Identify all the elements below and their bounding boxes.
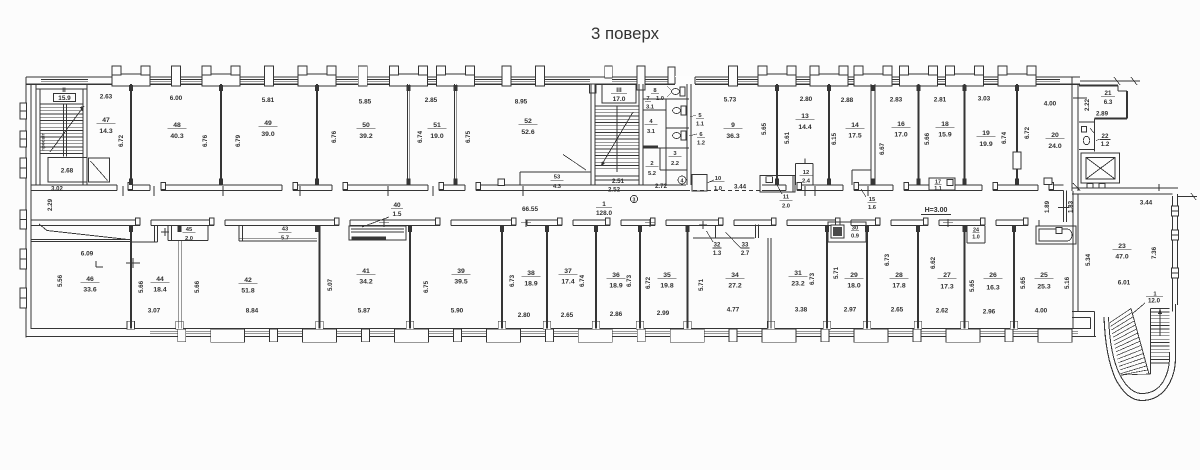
svg-text:39.0: 39.0 (261, 131, 274, 138)
svg-text:II: II (62, 87, 66, 94)
svg-text:4.77: 4.77 (727, 307, 740, 314)
svg-text:51.8: 51.8 (241, 288, 254, 295)
svg-text:5.90: 5.90 (451, 308, 464, 315)
svg-text:6.72: 6.72 (645, 276, 652, 289)
svg-text:4.00: 4.00 (1035, 308, 1048, 315)
svg-text:35: 35 (663, 272, 671, 279)
svg-text:19: 19 (982, 130, 990, 137)
svg-text:5.66: 5.66 (194, 280, 201, 293)
svg-text:31: 31 (794, 270, 802, 277)
svg-text:6.73: 6.73 (809, 272, 816, 285)
svg-text:2.29: 2.29 (47, 198, 54, 211)
svg-text:17.3: 17.3 (940, 284, 953, 291)
svg-text:52.6: 52.6 (521, 129, 534, 136)
svg-text:6.73: 6.73 (509, 274, 516, 287)
svg-text:6.73: 6.73 (884, 253, 891, 266)
svg-text:6.79: 6.79 (235, 134, 242, 147)
svg-text:49: 49 (264, 120, 272, 127)
svg-text:28: 28 (895, 272, 903, 279)
svg-text:26: 26 (989, 272, 997, 279)
svg-text:17.8: 17.8 (892, 283, 905, 290)
svg-text:15.9: 15.9 (58, 95, 71, 102)
svg-text:13: 13 (801, 113, 809, 120)
svg-text:53: 53 (554, 175, 561, 181)
svg-text:2.65: 2.65 (561, 312, 574, 319)
svg-text:18: 18 (941, 121, 949, 128)
svg-text:3.02: 3.02 (51, 187, 63, 193)
svg-text:6.72: 6.72 (1024, 126, 1031, 139)
svg-text:10: 10 (715, 176, 721, 182)
svg-text:5.07: 5.07 (327, 278, 334, 291)
svg-text:5.66: 5.66 (924, 132, 931, 145)
svg-text:2.97: 2.97 (844, 307, 857, 314)
svg-text:17.0: 17.0 (894, 132, 907, 139)
svg-text:19.0: 19.0 (430, 133, 443, 140)
svg-text:6.75: 6.75 (465, 130, 472, 143)
svg-text:12: 12 (803, 170, 809, 176)
svg-text:6.67: 6.67 (879, 142, 886, 155)
svg-text:6.3: 6.3 (1104, 99, 1113, 106)
svg-text:2: 2 (650, 161, 653, 167)
svg-text:5.85: 5.85 (359, 99, 372, 106)
svg-text:37: 37 (564, 268, 572, 275)
svg-text:17.4: 17.4 (561, 279, 574, 286)
svg-text:18.0: 18.0 (847, 283, 860, 290)
svg-text:0.9: 0.9 (851, 234, 860, 240)
svg-text:2.83: 2.83 (890, 97, 903, 104)
svg-text:27.2: 27.2 (728, 283, 741, 290)
svg-text:66.55: 66.55 (522, 206, 538, 213)
svg-text:14: 14 (851, 122, 859, 129)
svg-text:128.0: 128.0 (596, 210, 612, 217)
svg-text:6.72: 6.72 (118, 134, 125, 147)
svg-text:29: 29 (850, 272, 858, 279)
svg-text:1.2: 1.2 (697, 141, 705, 147)
svg-text:H=3.00: H=3.00 (925, 207, 948, 214)
svg-text:2.65: 2.65 (891, 307, 904, 314)
svg-text:6.76: 6.76 (331, 130, 338, 143)
svg-text:20: 20 (1051, 132, 1059, 139)
svg-text:42: 42 (244, 277, 252, 284)
svg-text:2.85: 2.85 (425, 97, 438, 104)
svg-text:1.0: 1.0 (714, 186, 722, 192)
svg-text:III: III (616, 87, 622, 94)
svg-text:3.44: 3.44 (734, 184, 747, 191)
svg-text:3.03: 3.03 (978, 96, 991, 103)
svg-text:2.80: 2.80 (518, 312, 531, 319)
svg-text:2.2: 2.2 (671, 161, 679, 167)
svg-text:23.2: 23.2 (791, 281, 804, 288)
svg-text:2.7: 2.7 (741, 251, 750, 257)
svg-text:25.3: 25.3 (1037, 284, 1050, 291)
svg-text:1.6: 1.6 (868, 205, 877, 211)
svg-text:1.0: 1.0 (972, 235, 980, 241)
svg-text:5.66: 5.66 (138, 280, 145, 293)
svg-text:19.8: 19.8 (660, 283, 673, 290)
svg-text:18.4: 18.4 (153, 287, 166, 294)
svg-text:5.65: 5.65 (1020, 276, 1027, 289)
svg-text:21: 21 (1105, 90, 1112, 97)
svg-text:33.6: 33.6 (83, 287, 96, 294)
svg-text:3.44: 3.44 (1140, 200, 1153, 207)
svg-text:6.74: 6.74 (417, 130, 424, 143)
svg-text:2.0: 2.0 (185, 236, 193, 242)
svg-text:19.9: 19.9 (979, 141, 992, 148)
svg-text:39.5: 39.5 (454, 279, 467, 286)
svg-text:45: 45 (186, 227, 193, 233)
svg-text:5.16: 5.16 (1064, 276, 1071, 289)
svg-text:3.1: 3.1 (646, 105, 655, 111)
svg-text:2.72: 2.72 (655, 183, 668, 190)
svg-text:2.22: 2.22 (1084, 98, 1091, 111)
svg-text:32: 32 (714, 243, 721, 249)
svg-text:6.75: 6.75 (423, 280, 430, 293)
svg-text:17.5: 17.5 (848, 133, 861, 140)
svg-text:3: 3 (633, 197, 636, 203)
svg-text:4: 4 (681, 178, 684, 184)
svg-text:2.99: 2.99 (657, 310, 670, 317)
svg-text:16.3: 16.3 (986, 285, 999, 292)
svg-text:6.74: 6.74 (579, 274, 586, 287)
svg-text:2.63: 2.63 (100, 94, 113, 101)
svg-text:14.4: 14.4 (798, 124, 811, 131)
svg-text:5.2: 5.2 (648, 171, 656, 177)
svg-text:8.95: 8.95 (515, 99, 528, 106)
svg-text:5.65: 5.65 (761, 122, 768, 135)
svg-text:1.2: 1.2 (1101, 141, 1110, 148)
svg-text:просвіт: просвіт (41, 132, 47, 151)
svg-text:9: 9 (731, 122, 735, 129)
svg-text:2.96: 2.96 (983, 309, 996, 316)
svg-text:5.56: 5.56 (57, 274, 64, 287)
svg-text:33: 33 (742, 243, 749, 249)
svg-text:6.09: 6.09 (81, 251, 94, 258)
svg-text:17.0: 17.0 (613, 96, 626, 103)
svg-text:24.0: 24.0 (1048, 143, 1061, 150)
svg-text:2.52: 2.52 (608, 187, 621, 194)
svg-text:12.0: 12.0 (1148, 298, 1161, 305)
svg-text:40.3: 40.3 (170, 133, 183, 140)
svg-text:7.36: 7.36 (1151, 246, 1158, 259)
svg-text:22: 22 (1102, 133, 1109, 140)
svg-text:5.65: 5.65 (969, 279, 976, 292)
svg-text:36: 36 (612, 272, 620, 279)
svg-text:34.2: 34.2 (359, 279, 372, 286)
svg-text:38: 38 (527, 270, 535, 277)
svg-text:47.0: 47.0 (1115, 254, 1128, 261)
svg-text:18.9: 18.9 (524, 281, 537, 288)
svg-text:2.89: 2.89 (1096, 111, 1109, 118)
svg-text:48: 48 (173, 122, 181, 129)
svg-text:1.89: 1.89 (1044, 200, 1051, 213)
svg-text:1: 1 (602, 201, 606, 208)
svg-text:3 поверх: 3 поверх (591, 24, 660, 43)
svg-text:2.62: 2.62 (936, 308, 949, 315)
svg-text:47: 47 (102, 117, 110, 124)
svg-text:3.07: 3.07 (148, 308, 161, 315)
svg-text:5.71: 5.71 (698, 278, 705, 291)
svg-text:5.73: 5.73 (724, 97, 737, 104)
svg-text:40: 40 (393, 202, 401, 209)
svg-text:27: 27 (943, 272, 951, 279)
svg-text:3.38: 3.38 (795, 307, 808, 314)
svg-text:44: 44 (156, 276, 164, 283)
svg-text:4.3: 4.3 (553, 184, 562, 190)
svg-text:2.68: 2.68 (61, 168, 74, 175)
svg-text:50: 50 (362, 122, 370, 129)
svg-text:52: 52 (524, 118, 532, 125)
svg-text:2.0: 2.0 (782, 204, 790, 210)
svg-text:6.01: 6.01 (1118, 280, 1131, 287)
svg-text:6.62: 6.62 (930, 256, 937, 269)
svg-text:2.88: 2.88 (841, 97, 854, 104)
svg-text:5.87: 5.87 (358, 308, 371, 315)
svg-text:2.81: 2.81 (934, 97, 947, 104)
svg-text:36.3: 36.3 (726, 133, 739, 140)
svg-text:6.76: 6.76 (202, 134, 209, 147)
svg-text:18.9: 18.9 (609, 283, 622, 290)
svg-text:5.34: 5.34 (1085, 253, 1092, 266)
svg-text:11: 11 (783, 195, 790, 201)
svg-text:8.84: 8.84 (246, 308, 259, 315)
svg-text:3.1: 3.1 (647, 129, 656, 135)
svg-text:5.71: 5.71 (833, 266, 840, 279)
svg-text:6.00: 6.00 (170, 95, 183, 102)
svg-text:51: 51 (433, 122, 441, 129)
svg-text:2.80: 2.80 (800, 96, 813, 103)
svg-text:5.61: 5.61 (784, 131, 791, 144)
svg-text:1.0: 1.0 (656, 96, 664, 102)
svg-text:4.00: 4.00 (1044, 101, 1057, 108)
svg-text:43: 43 (282, 227, 289, 233)
svg-text:39.2: 39.2 (359, 133, 372, 140)
svg-text:16: 16 (897, 121, 905, 128)
svg-text:1.5: 1.5 (393, 211, 402, 218)
svg-text:41: 41 (362, 268, 370, 275)
svg-text:2.51: 2.51 (612, 178, 625, 185)
svg-text:1.1: 1.1 (934, 186, 942, 192)
svg-text:14.3: 14.3 (99, 128, 112, 135)
svg-text:23: 23 (1118, 243, 1126, 250)
svg-text:15.9: 15.9 (938, 132, 951, 139)
svg-text:6.73: 6.73 (626, 274, 633, 287)
svg-text:25: 25 (1040, 272, 1048, 279)
svg-text:39: 39 (457, 268, 465, 275)
svg-text:1.1: 1.1 (696, 122, 705, 128)
svg-text:2.4: 2.4 (802, 179, 811, 185)
svg-text:2.86: 2.86 (610, 311, 623, 318)
svg-text:34: 34 (731, 272, 739, 279)
svg-text:5.7: 5.7 (281, 236, 289, 242)
svg-text:6.74: 6.74 (1001, 131, 1008, 144)
svg-text:1.3: 1.3 (713, 251, 722, 257)
svg-text:5.81: 5.81 (262, 97, 275, 104)
svg-text:6.15: 6.15 (831, 132, 838, 145)
svg-text:46: 46 (86, 276, 94, 283)
